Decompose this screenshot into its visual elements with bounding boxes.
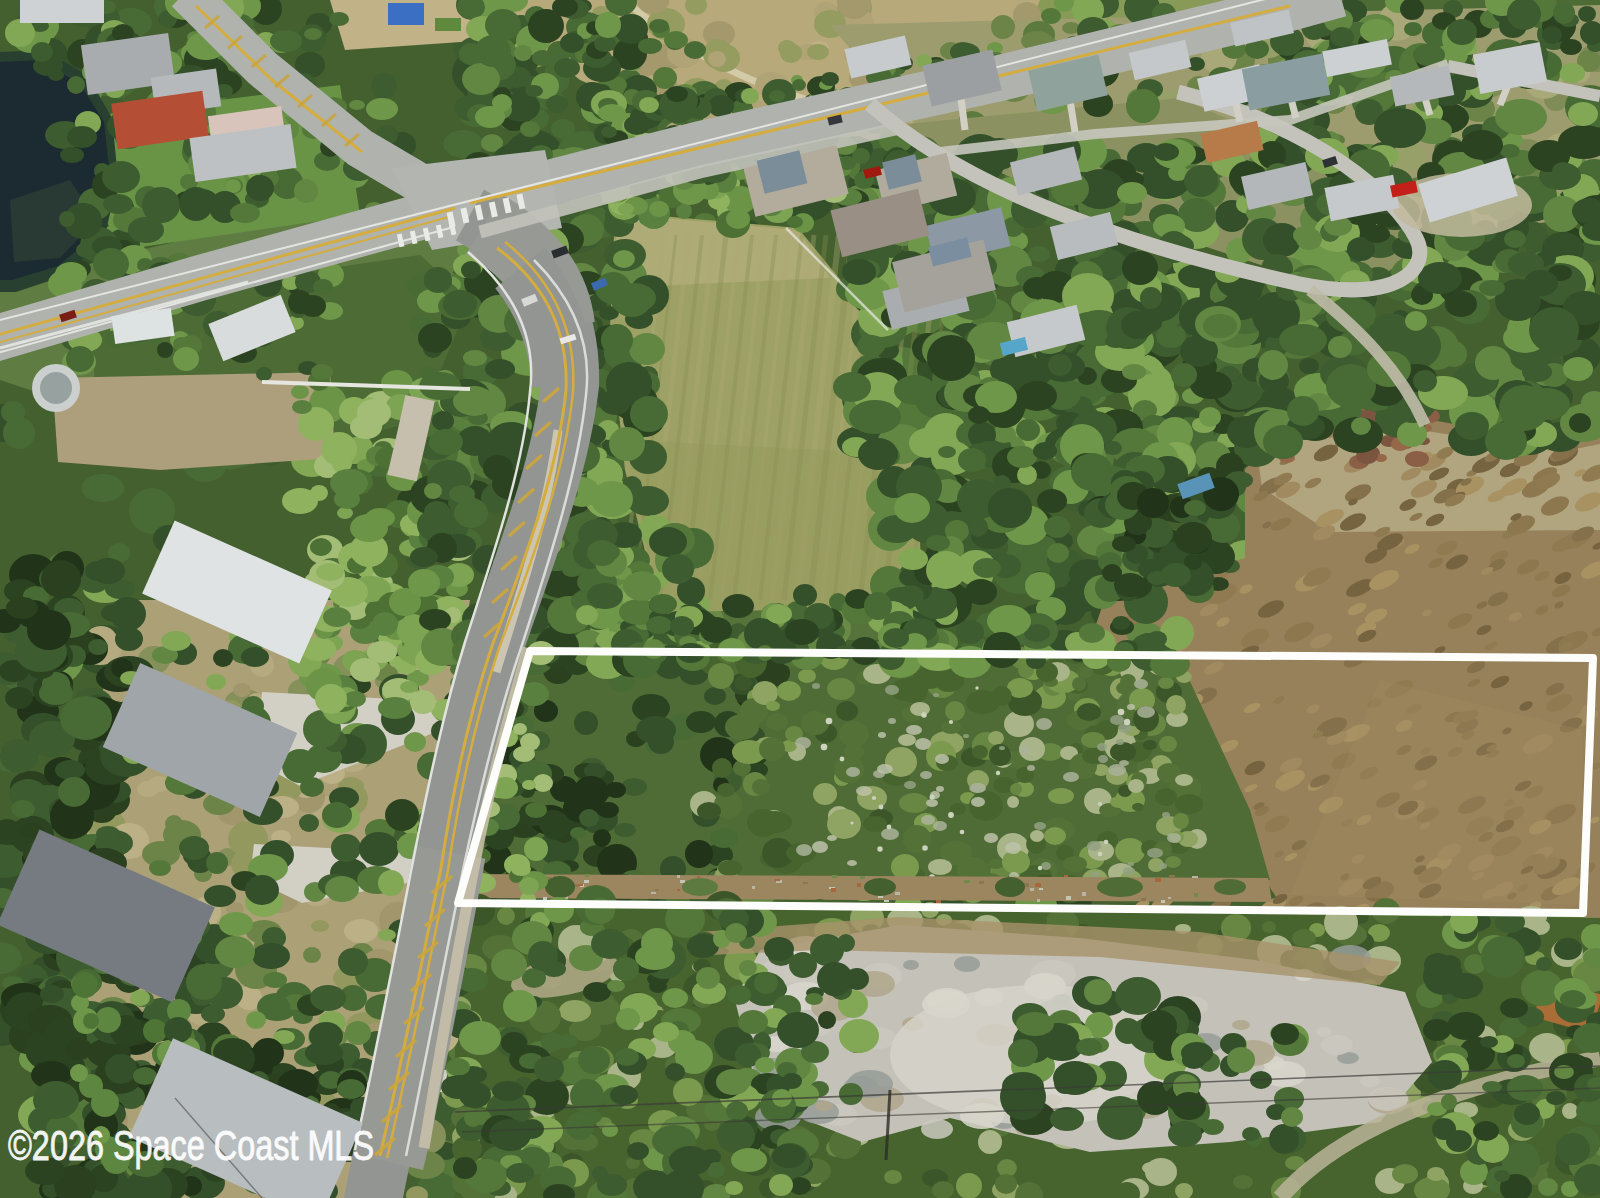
svg-text:©2026 Space Coast MLS: ©2026 Space Coast MLS [8,1122,374,1169]
